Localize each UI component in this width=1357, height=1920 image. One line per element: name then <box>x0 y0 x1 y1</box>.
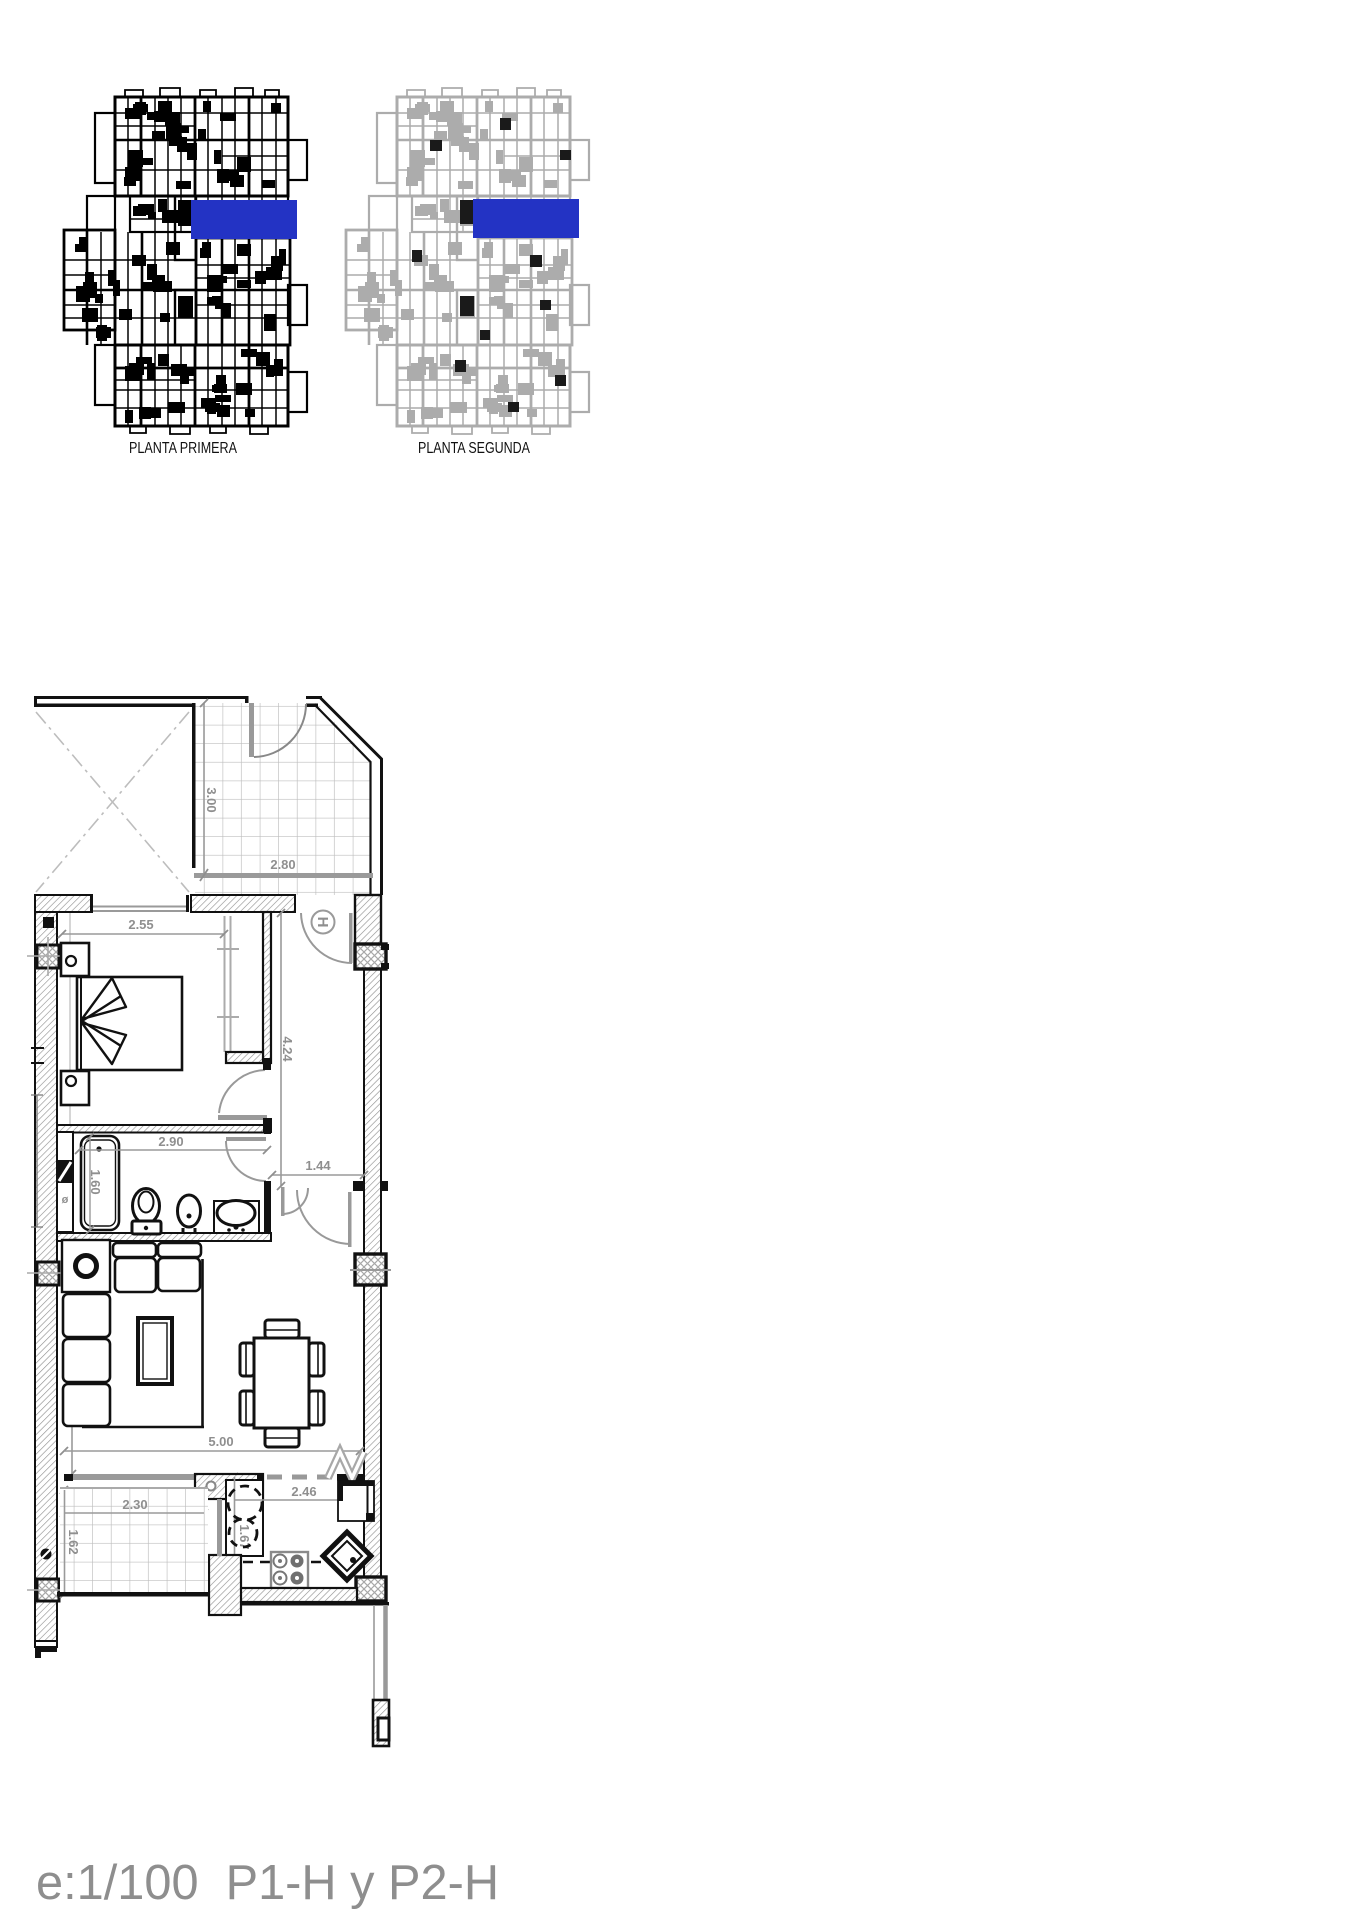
svg-text:5.00: 5.00 <box>208 1434 233 1449</box>
svg-text:2.55: 2.55 <box>128 917 153 932</box>
svg-text:e:1/100 P1-H y P2-H: e:1/100 P1-H y P2-H <box>36 1856 499 1910</box>
svg-text:4.24: 4.24 <box>280 1036 295 1062</box>
svg-text:2.80: 2.80 <box>270 857 295 872</box>
svg-text:2.46: 2.46 <box>291 1484 316 1499</box>
svg-text:1.60: 1.60 <box>88 1169 103 1194</box>
svg-text:PLANTA SEGUNDA: PLANTA SEGUNDA <box>418 440 530 457</box>
svg-text:ø: ø <box>62 1194 69 1206</box>
svg-text:PLANTA PRIMERA: PLANTA PRIMERA <box>129 440 237 457</box>
svg-text:2.30: 2.30 <box>122 1497 147 1512</box>
svg-text:1.44: 1.44 <box>305 1158 331 1173</box>
svg-text:2.90: 2.90 <box>158 1134 183 1149</box>
svg-text:3.00: 3.00 <box>204 787 219 812</box>
svg-text:H: H <box>314 917 331 928</box>
svg-text:1.62: 1.62 <box>66 1529 81 1554</box>
